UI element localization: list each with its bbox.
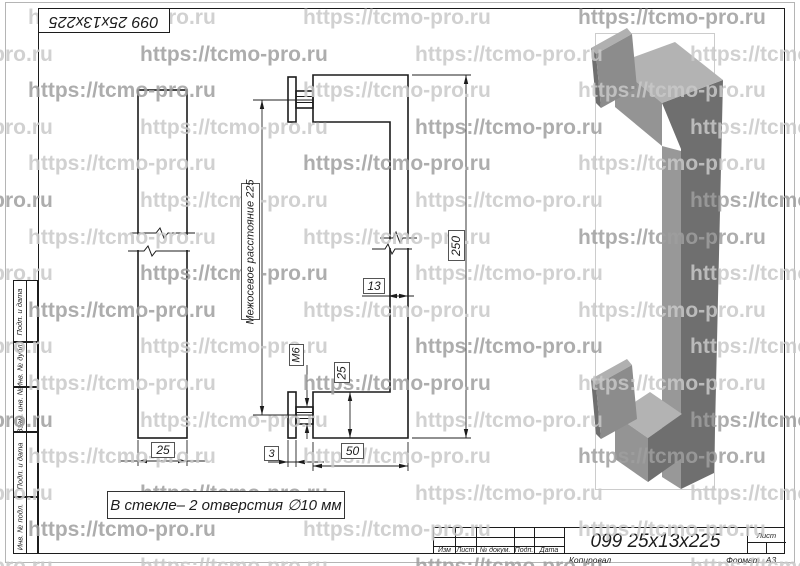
- front-view-outline: [138, 90, 187, 438]
- side-view-outline: [313, 75, 408, 438]
- dim-arm-length-50: 50: [341, 443, 364, 459]
- tb-sheet-label: Лист: [747, 528, 786, 542]
- format-label: Формат: [722, 555, 764, 565]
- top-screw: [296, 91, 313, 108]
- top-stamp: 099 25x13x225: [38, 8, 170, 33]
- top-plate: [288, 77, 296, 122]
- screw-lines: [296, 97, 313, 419]
- drawing-linework: [0, 0, 800, 566]
- title-block: Изм Лист № докум. Подп. Дата 099 25x13x2…: [433, 527, 785, 554]
- body-outlines: [138, 75, 408, 438]
- tb-col-list: Лист: [455, 546, 476, 555]
- iso-view: [591, 28, 723, 489]
- top-stamp-title: 099 25x13x225: [49, 12, 158, 30]
- dim-interaxial-label: Межосевое расстояние 225: [241, 183, 260, 320]
- tb-col-data: Дата: [534, 546, 564, 555]
- dim-overall-250: 250: [448, 230, 465, 261]
- tb-col-podp: Подп.: [514, 546, 534, 555]
- dim-plate-thickness-3: 3: [264, 446, 279, 461]
- drawing-sheet: 099 25x13x225 Подп. и дата Инв. № дубл. …: [0, 0, 800, 566]
- format-value: А3: [763, 555, 779, 565]
- tb-doc-title: 099 25x13x225: [564, 528, 747, 555]
- glass-note: В стекле– 2 отверстия ∅10 мм: [107, 491, 345, 519]
- dim-arm-height-25: 25: [334, 362, 350, 383]
- break-mask-front: [133, 235, 192, 250]
- bottom-screw: [296, 407, 313, 424]
- tb-line: [766, 542, 767, 553]
- tb-line: [434, 537, 564, 538]
- dim-bar-width-25: 25: [151, 442, 175, 458]
- tb-col-docnum: № докум.: [476, 546, 514, 555]
- tb-col-izm: Изм: [434, 546, 455, 555]
- dim-bar-thickness-13: 13: [363, 278, 385, 294]
- copied-label: Копировал: [560, 555, 620, 565]
- dim-thread-m6: М6: [289, 344, 304, 366]
